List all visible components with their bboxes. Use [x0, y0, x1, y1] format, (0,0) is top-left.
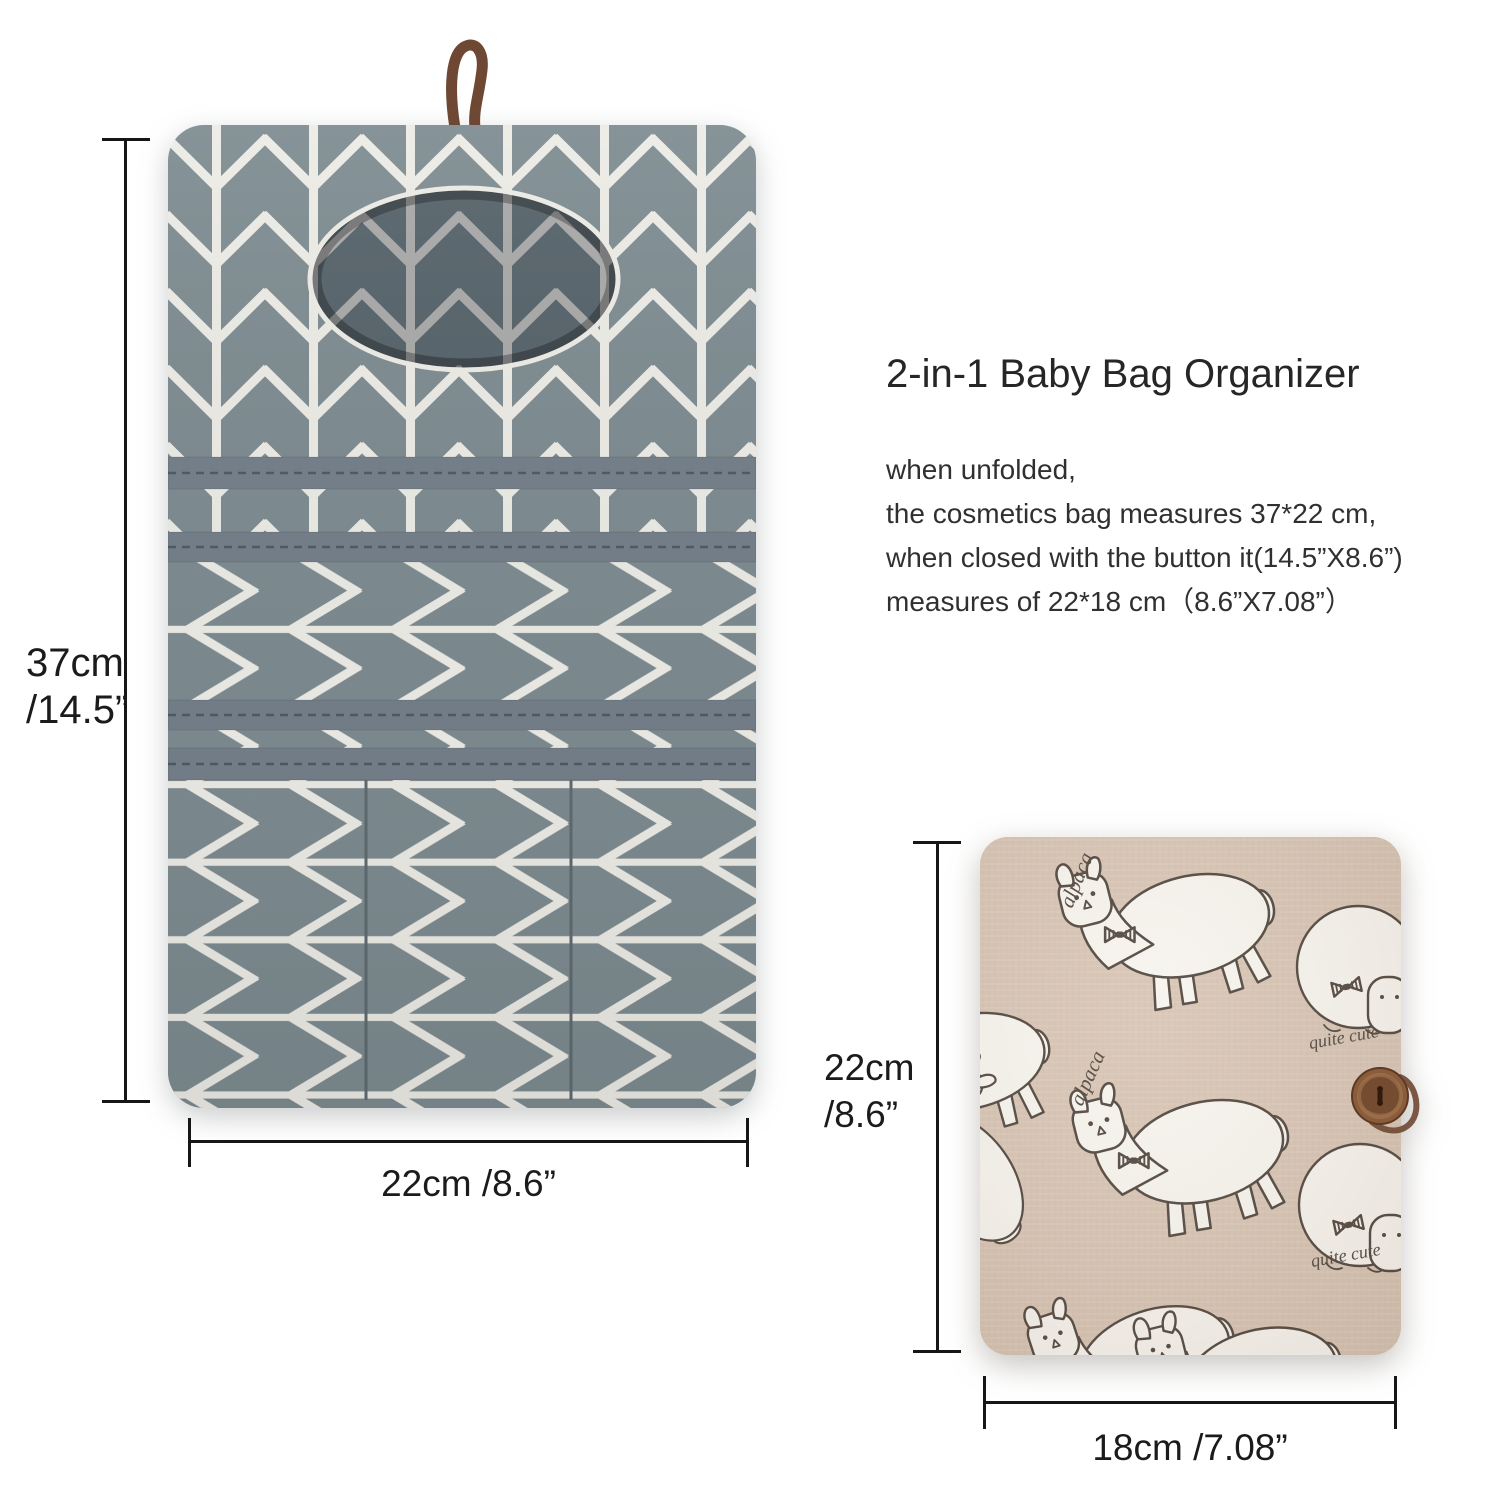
description-line: the cosmetics bag measures 37*22 cm,: [886, 492, 1403, 536]
dim-tick: [983, 1376, 986, 1429]
description-line: measures of 22*18 cm（8.6”X7.08”）: [886, 580, 1403, 624]
dim-cap: [913, 841, 961, 844]
dim-cap: [102, 1100, 150, 1103]
dim-cap: [913, 1350, 961, 1353]
dim-label-folded-height: 22cm /8.6”: [824, 1044, 914, 1138]
folded-organizer: alpaca alpaca quite cute quite cute: [980, 837, 1442, 1357]
dim-cap: [102, 138, 150, 141]
dim-line-horizontal: [984, 1401, 1396, 1404]
dim-label-unfolded-width: 22cm /8.6”: [189, 1160, 748, 1207]
dim-line-horizontal: [189, 1140, 748, 1143]
dim-label-folded-width: 18cm /7.08”: [984, 1424, 1396, 1471]
dim-line-vertical: [936, 843, 939, 1353]
description-line: when unfolded,: [886, 448, 1403, 492]
product-infographic: alpaca alpaca quite cute quite cute 37cm…: [0, 0, 1500, 1500]
unfolded-organizer: [168, 125, 756, 1108]
dim-label-unfolded-height: 37cm /14.5”: [26, 640, 128, 734]
dim-line-vertical: [124, 140, 127, 1103]
dim-tick: [1394, 1376, 1397, 1429]
product-description: when unfolded, the cosmetics bag measure…: [886, 448, 1403, 624]
description-line: when closed with the button it(14.5”X8.6…: [886, 536, 1403, 580]
leather-loop: [438, 36, 502, 130]
product-title: 2-in-1 Baby Bag Organizer: [886, 352, 1360, 397]
